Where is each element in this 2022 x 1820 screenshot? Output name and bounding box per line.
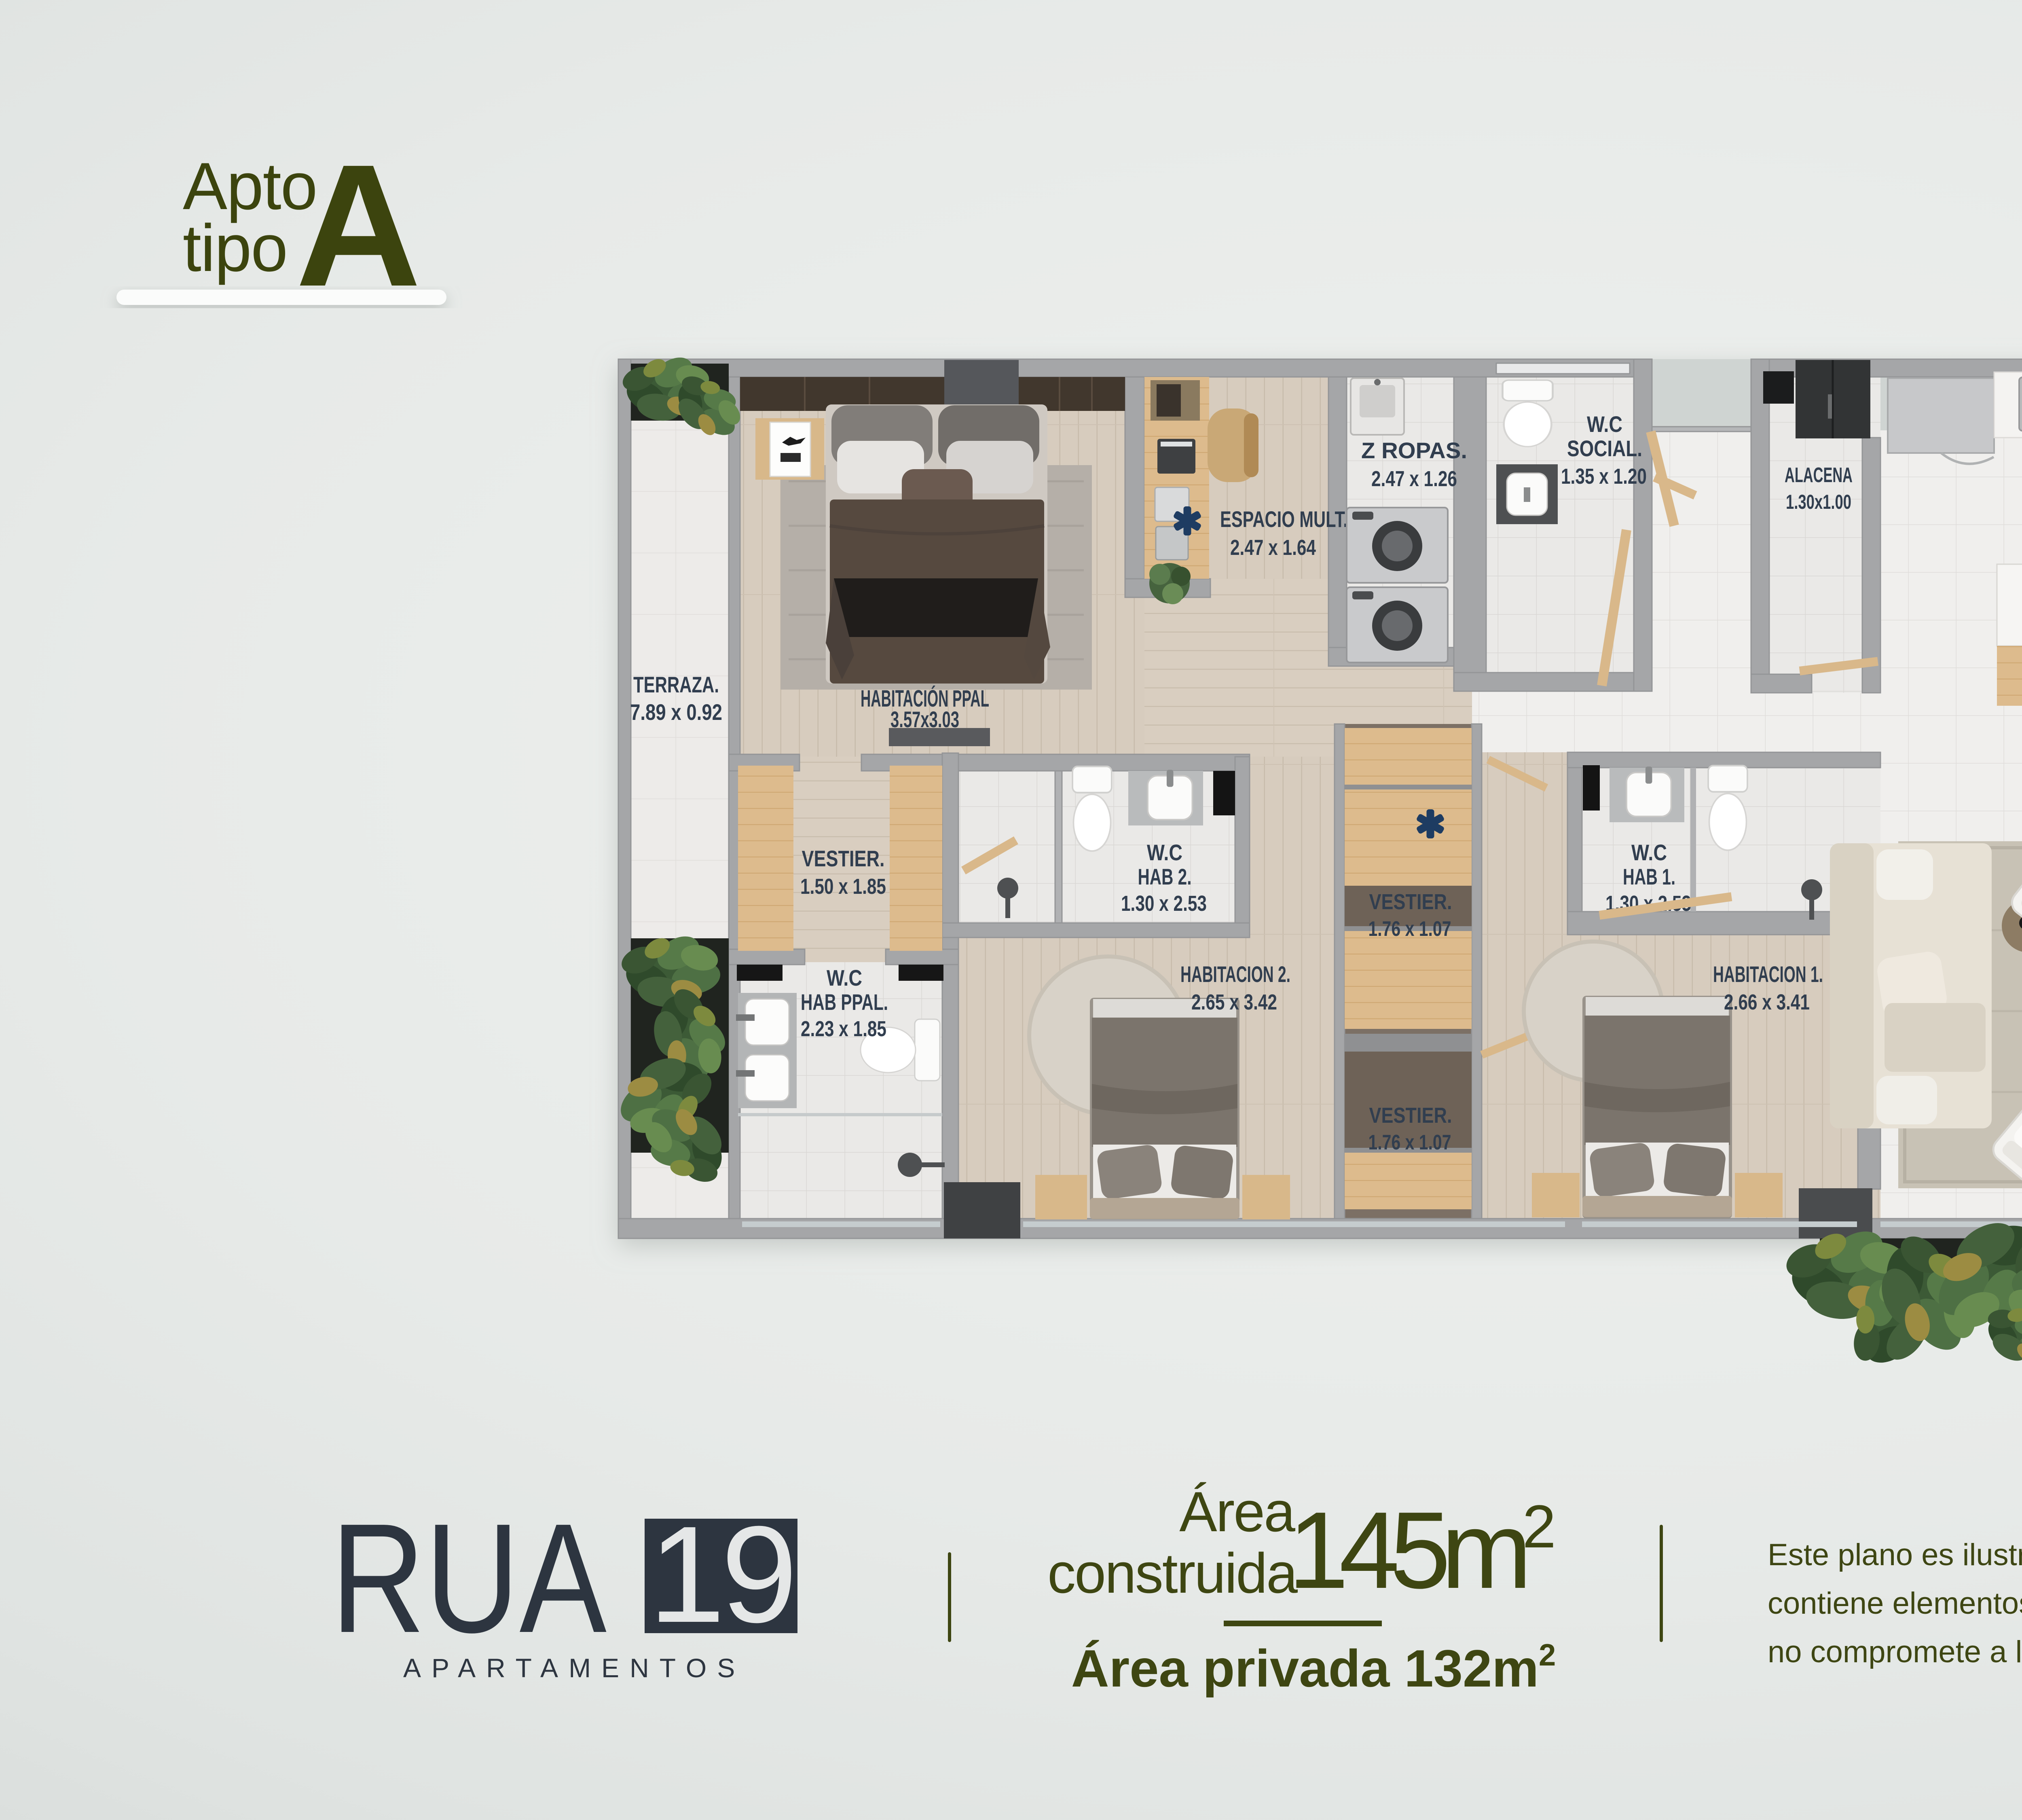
svg-text:1.35 x 1.20: 1.35 x 1.20: [1561, 464, 1647, 489]
svg-text:1.76 x 1.07: 1.76 x 1.07: [1368, 917, 1451, 941]
svg-text:W.C: W.C: [827, 965, 862, 990]
svg-text:2.66 x 3.41: 2.66 x 3.41: [1724, 990, 1810, 1014]
svg-text:RUA: RUA: [331, 1491, 607, 1665]
svg-text:19: 19: [649, 1498, 793, 1651]
svg-text:W.C: W.C: [1147, 840, 1182, 865]
svg-text:1.50 x 1.85: 1.50 x 1.85: [800, 874, 886, 899]
svg-text:Área privada 132m2: Área privada 132m2: [1071, 1638, 1556, 1698]
svg-text:2.47 x 1.26: 2.47 x 1.26: [1371, 467, 1457, 491]
svg-text:W.C: W.C: [1631, 840, 1667, 865]
svg-text:3.57x3.03: 3.57x3.03: [890, 707, 959, 732]
svg-text:SOCIAL.: SOCIAL.: [1567, 436, 1642, 461]
svg-text:APARTAMENTOS: APARTAMENTOS: [403, 1653, 745, 1683]
svg-text:ESPACIO MULT.: ESPACIO MULT.: [1220, 506, 1348, 532]
svg-text:W.C: W.C: [1587, 411, 1622, 437]
svg-text:construida: construida: [1047, 1541, 1298, 1605]
svg-text:VESTIER.: VESTIER.: [802, 846, 885, 871]
svg-text:ALACENA: ALACENA: [1785, 463, 1853, 487]
svg-text:tipo: tipo: [183, 211, 287, 285]
svg-text:Z ROPAS.: Z ROPAS.: [1361, 438, 1467, 463]
svg-text:7.89 x 0.92: 7.89 x 0.92: [630, 699, 722, 725]
svg-text:VESTIER.: VESTIER.: [1369, 890, 1452, 914]
svg-text:TERRAZA.: TERRAZA.: [633, 672, 719, 697]
svg-text:HAB 1.: HAB 1.: [1623, 864, 1675, 889]
svg-text:VESTIER.: VESTIER.: [1369, 1103, 1452, 1128]
svg-text:1.30 x 2.53: 1.30 x 2.53: [1121, 891, 1207, 916]
svg-text:2.23 x 1.85: 2.23 x 1.85: [801, 1017, 886, 1041]
svg-text:2.47 x 1.64: 2.47 x 1.64: [1230, 535, 1316, 560]
svg-text:HAB PPAL.: HAB PPAL.: [801, 989, 888, 1015]
svg-text:2.65 x 3.42: 2.65 x 3.42: [1191, 990, 1277, 1014]
svg-text:HABITACION 2.: HABITACION 2.: [1180, 961, 1290, 987]
svg-text:1.30x1.00: 1.30x1.00: [1786, 491, 1851, 513]
svg-text:Área: Área: [1179, 1480, 1295, 1543]
svg-text:Este plano es ilustrativo y po: Este plano es ilustrativo y por lo tanto…: [1768, 1538, 2022, 1572]
svg-text:HAB 2.: HAB 2.: [1138, 864, 1192, 889]
svg-text:HABITACION 1.: HABITACION 1.: [1713, 961, 1823, 987]
svg-text:1.76 x 1.07: 1.76 x 1.07: [1368, 1131, 1451, 1154]
svg-text:no compromete a la sociedad pr: no compromete a la sociedad promotora. P…: [1768, 1635, 2022, 1669]
svg-text:145m2: 145m2: [1288, 1490, 1553, 1611]
svg-text:contiene elementos de apreciac: contiene elementos de apreciación estéti…: [1768, 1586, 2022, 1621]
